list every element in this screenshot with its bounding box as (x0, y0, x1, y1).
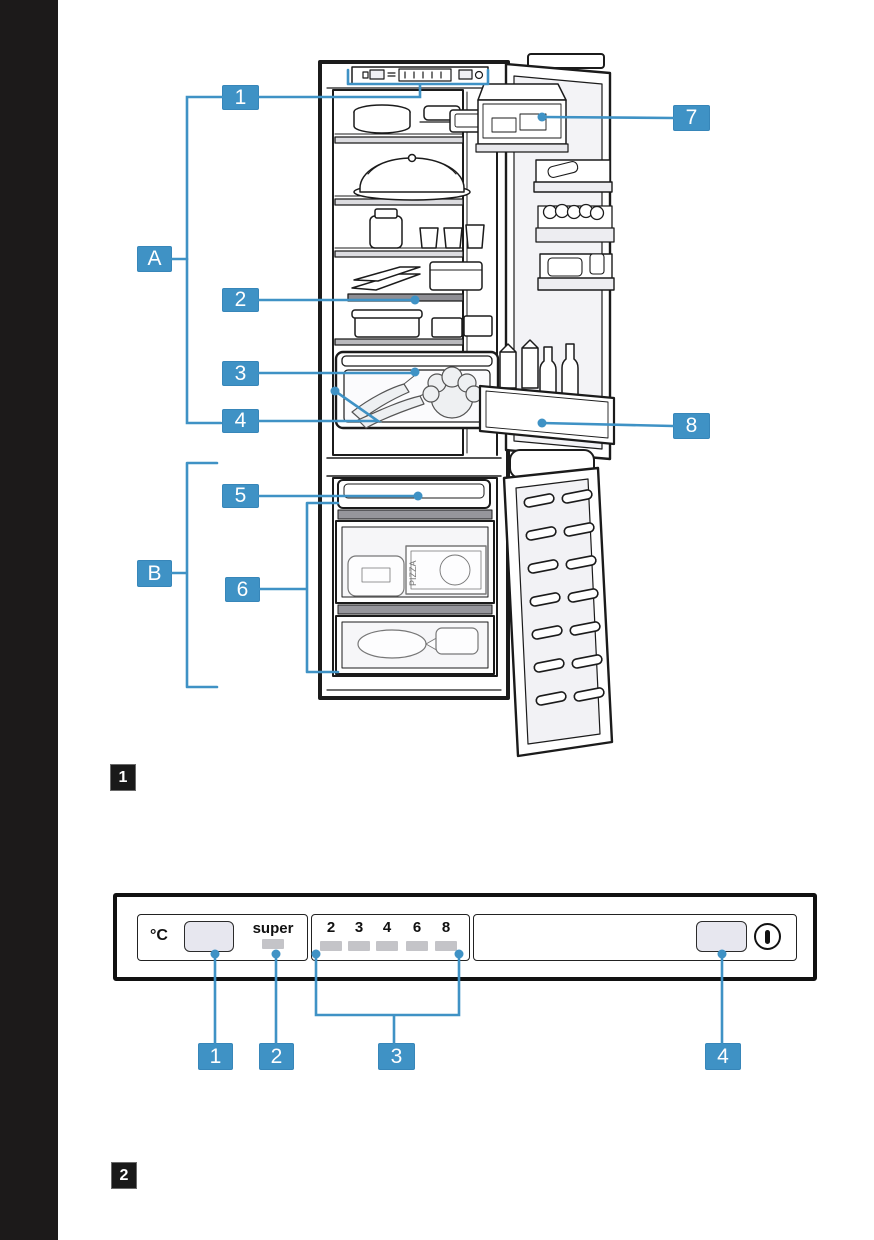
callout-5-freezer-flap: 5 (222, 484, 259, 508)
callout-1-temp-button: 1 (198, 1043, 233, 1070)
callout-3-vegetable-drawer: 3 (222, 361, 259, 386)
bottle-bin (480, 340, 614, 444)
callout-4-power-button: 4 (705, 1043, 741, 1070)
bracket-6 (260, 503, 338, 672)
power-button (696, 921, 747, 952)
cabinet-outline (320, 62, 508, 698)
celsius-label: °C (150, 927, 168, 945)
super-indicator-led (262, 939, 284, 949)
scale-number: 4 (374, 919, 400, 937)
callout-3-temp-scale: 3 (378, 1043, 415, 1070)
power-section (473, 914, 797, 961)
scale-number: 2 (318, 919, 344, 937)
temperature-button (184, 921, 234, 952)
scale-number: 8 (433, 919, 459, 937)
scale-led (376, 941, 398, 951)
bracket-A (187, 97, 222, 423)
scale-led (435, 941, 457, 951)
interior-control-panel (352, 67, 488, 84)
callout-2-super-led: 2 (259, 1043, 294, 1070)
callout-1-control-panel: 1 (222, 85, 259, 110)
door-shelf-eggs (536, 205, 614, 243)
fridge-compartment (333, 90, 497, 455)
callout-8-bottle-shelf: 8 (673, 413, 710, 439)
pointer-4 (259, 391, 378, 421)
fridge-door (476, 54, 614, 459)
temperature-section: °C super (137, 914, 308, 961)
scale-number: 3 (346, 919, 372, 937)
power-icon (754, 923, 781, 950)
pointer-7 (542, 117, 673, 118)
scale-step: 2 (318, 919, 344, 951)
pizza-box-label: PIZZA (408, 560, 418, 586)
super-label: super (238, 920, 308, 937)
callout-lines-layer (0, 0, 874, 1240)
scale-step: 3 (346, 919, 372, 951)
chiller-shelf (348, 294, 463, 301)
door-shelf-pack (538, 254, 614, 290)
scale-step: 4 (374, 919, 400, 951)
bracket-B (172, 463, 217, 687)
fridge-freezer-illustration: PIZZA (0, 0, 874, 1240)
scale-led (320, 941, 342, 951)
scale-led (406, 941, 428, 951)
freezer-compartment: PIZZA (333, 478, 497, 676)
vegetable-drawer (336, 352, 498, 428)
freezer-door-ribs (524, 489, 605, 706)
fridge-food-items (352, 105, 496, 337)
scale-step: 6 (404, 919, 430, 951)
callout-B-freezer-section: B (137, 560, 172, 587)
scale-led (348, 941, 370, 951)
butter-compartment (476, 84, 568, 152)
freezer-door (504, 450, 612, 756)
left-black-bar (0, 0, 58, 1240)
pointer-8 (542, 423, 673, 426)
pointer-1 (259, 70, 488, 97)
callout-4-drawer-cover: 4 (222, 409, 259, 433)
callout-2-shelf: 2 (222, 288, 259, 312)
callout-dots (211, 113, 727, 959)
temperature-scale-section: 2 3 4 6 8 (311, 914, 470, 961)
control-panel-figure: °C super 2 3 4 6 8 (113, 893, 817, 981)
scale-number: 6 (404, 919, 430, 937)
callout-A-fridge-section: A (137, 246, 172, 272)
freezer-top-flap (338, 480, 490, 508)
manual-page: PIZZA (0, 0, 874, 1240)
callout-6-freezer-drawers: 6 (225, 577, 260, 602)
figure-1-number: 1 (111, 765, 135, 790)
figure-2-number: 2 (112, 1163, 136, 1188)
callout-7-butter-compartment: 7 (673, 105, 710, 131)
scale-step: 8 (433, 919, 459, 951)
door-shelf-small (534, 160, 612, 192)
